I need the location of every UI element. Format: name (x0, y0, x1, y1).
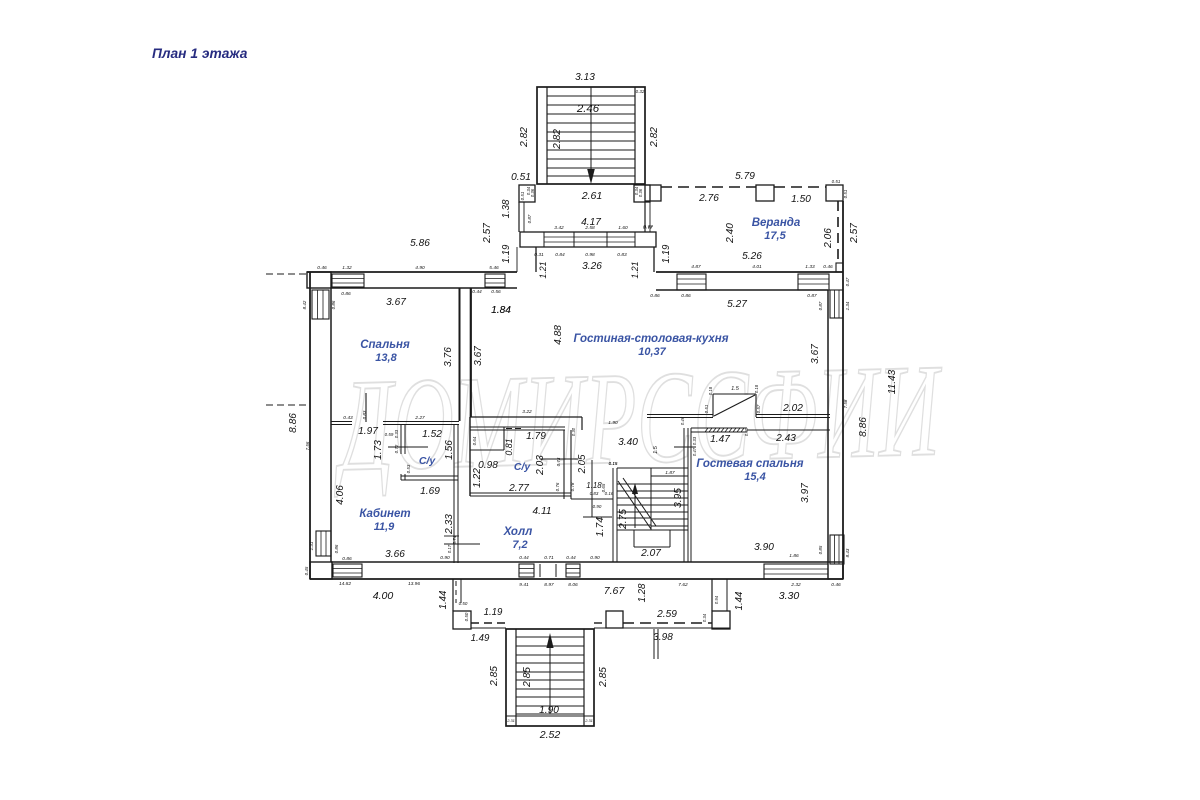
svg-text:0.17: 0.17 (447, 544, 452, 553)
svg-text:3.67: 3.67 (473, 346, 484, 366)
svg-text:3.26: 3.26 (582, 261, 602, 272)
svg-text:0.86: 0.86 (334, 544, 339, 553)
svg-text:1.97: 1.97 (358, 426, 378, 437)
svg-text:0.44: 0.44 (519, 555, 529, 561)
svg-text:2.27: 2.27 (414, 415, 425, 421)
svg-text:5.46: 5.46 (489, 265, 499, 271)
svg-text:0.77: 0.77 (643, 224, 653, 230)
svg-text:2.76: 2.76 (698, 193, 719, 204)
svg-text:3.97: 3.97 (800, 483, 811, 503)
svg-text:0.57: 0.57 (756, 404, 761, 413)
svg-text:7.67: 7.67 (604, 585, 626, 597)
svg-text:2.40: 2.40 (725, 223, 736, 244)
svg-text:1.19: 1.19 (484, 607, 503, 618)
svg-text:0.65: 0.65 (601, 483, 606, 492)
svg-text:1.18: 1.18 (586, 481, 602, 490)
svg-text:4.88: 4.88 (553, 325, 564, 345)
svg-text:1.44: 1.44 (734, 591, 745, 610)
svg-text:0.81: 0.81 (504, 438, 514, 455)
svg-text:1.34: 1.34 (845, 301, 850, 310)
svg-text:3.67: 3.67 (810, 344, 821, 364)
svg-text:2.31: 2.31 (506, 718, 515, 723)
svg-text:0.56: 0.56 (491, 289, 501, 295)
svg-text:1.19: 1.19 (661, 244, 672, 263)
svg-text:0.32: 0.32 (636, 89, 645, 94)
svg-text:8.86: 8.86 (288, 413, 299, 433)
svg-text:4.87: 4.87 (691, 264, 701, 270)
svg-text:0.46: 0.46 (680, 416, 685, 425)
svg-text:Веранда: Веранда (752, 217, 801, 229)
svg-text:2.82: 2.82 (649, 127, 660, 148)
svg-text:2.57: 2.57 (849, 223, 860, 244)
svg-text:3.76: 3.76 (443, 347, 454, 367)
svg-text:1.5: 1.5 (731, 386, 740, 392)
svg-text:1.28: 1.28 (637, 583, 648, 602)
svg-text:0.34: 0.34 (702, 613, 707, 622)
svg-text:7.58: 7.58 (843, 399, 848, 408)
svg-text:2.77: 2.77 (508, 483, 529, 494)
svg-text:5.27: 5.27 (727, 299, 747, 310)
svg-text:С/у: С/у (419, 455, 437, 467)
svg-text:15,4: 15,4 (744, 471, 765, 483)
svg-text:1.19: 1.19 (501, 244, 512, 263)
svg-text:1.50: 1.50 (791, 194, 811, 205)
svg-text:0.94: 0.94 (714, 595, 719, 604)
svg-text:3.90: 3.90 (754, 542, 774, 553)
svg-text:1.49: 1.49 (471, 633, 490, 644)
svg-text:1.44: 1.44 (438, 590, 449, 609)
svg-text:1.90: 1.90 (608, 420, 618, 426)
svg-text:1.32: 1.32 (342, 265, 352, 271)
svg-text:0.36: 0.36 (530, 188, 535, 197)
svg-text:3.66: 3.66 (385, 549, 405, 560)
svg-text:0.50: 0.50 (464, 612, 469, 621)
svg-text:1.79: 1.79 (526, 431, 546, 442)
svg-text:2.85: 2.85 (489, 666, 500, 687)
svg-text:3.22: 3.22 (522, 409, 532, 415)
svg-text:0.44: 0.44 (472, 289, 482, 295)
svg-text:1.60: 1.60 (618, 225, 628, 231)
svg-text:0.50: 0.50 (459, 601, 468, 606)
svg-text:1.5: 1.5 (653, 445, 659, 454)
svg-text:0.36: 0.36 (638, 188, 643, 197)
svg-text:2.57: 2.57 (482, 223, 493, 244)
svg-text:0.51: 0.51 (832, 179, 841, 184)
svg-text:С/у: С/у (514, 461, 532, 473)
svg-text:0.87: 0.87 (527, 214, 532, 223)
svg-text:0.71: 0.71 (544, 555, 554, 561)
svg-text:4.00: 4.00 (373, 590, 394, 602)
svg-text:8.42: 8.42 (302, 300, 307, 309)
svg-text:1.56: 1.56 (444, 440, 455, 460)
svg-text:0.87: 0.87 (807, 293, 817, 299)
svg-text:0.45: 0.45 (304, 566, 309, 575)
svg-text:0.90: 0.90 (590, 555, 600, 561)
svg-text:11.43: 11.43 (887, 369, 898, 394)
svg-text:0.47: 0.47 (692, 447, 697, 456)
svg-text:0.51: 0.51 (511, 172, 531, 183)
svg-text:1.90: 1.90 (539, 705, 559, 716)
svg-text:2.58: 2.58 (584, 225, 595, 231)
svg-text:1.87: 1.87 (665, 470, 675, 476)
svg-text:0.46: 0.46 (831, 582, 841, 588)
svg-text:0.18: 0.18 (708, 386, 713, 395)
svg-text:Гостиная-столовая-кухня: Гостиная-столовая-кухня (573, 333, 728, 345)
svg-text:2.85: 2.85 (522, 667, 533, 688)
svg-text:0.47: 0.47 (845, 277, 850, 286)
svg-text:0.84: 0.84 (555, 252, 565, 258)
svg-text:3.30: 3.30 (779, 590, 800, 602)
svg-text:0.78: 0.78 (570, 482, 575, 491)
svg-text:0.33: 0.33 (692, 436, 697, 445)
svg-text:3.95: 3.95 (673, 488, 684, 508)
svg-text:1.74: 1.74 (595, 517, 606, 537)
svg-text:5.86: 5.86 (410, 238, 430, 249)
svg-text:0.51: 0.51 (520, 191, 525, 200)
svg-text:2.85: 2.85 (598, 667, 609, 688)
svg-text:1.86: 1.86 (789, 553, 799, 559)
svg-text:0.18: 0.18 (754, 384, 759, 393)
svg-text:4.01: 4.01 (752, 264, 762, 270)
svg-text:1.21: 1.21 (630, 261, 640, 278)
svg-text:11,9: 11,9 (374, 521, 395, 533)
svg-text:0.16: 0.16 (605, 491, 614, 496)
svg-text:3.13: 3.13 (575, 72, 595, 83)
svg-text:3.42: 3.42 (554, 225, 564, 231)
svg-text:9.41: 9.41 (519, 582, 529, 588)
svg-text:4.90: 4.90 (415, 265, 425, 271)
svg-text:Кабинет: Кабинет (359, 508, 410, 520)
svg-text:0.76: 0.76 (555, 482, 560, 491)
svg-text:1.84: 1.84 (491, 305, 511, 316)
svg-text:1.47: 1.47 (710, 434, 730, 445)
svg-text:0.86: 0.86 (650, 293, 660, 299)
svg-text:7,2: 7,2 (512, 539, 527, 551)
svg-text:0.46: 0.46 (823, 264, 833, 270)
svg-text:2.03: 2.03 (535, 455, 546, 476)
svg-text:2.06: 2.06 (823, 228, 834, 249)
svg-text:Гостевая спальня: Гостевая спальня (696, 458, 803, 470)
svg-text:2.75: 2.75 (618, 509, 629, 530)
svg-text:0.43: 0.43 (343, 415, 353, 421)
svg-text:2.05: 2.05 (577, 454, 588, 474)
svg-text:0.15: 0.15 (609, 461, 618, 466)
svg-text:0.83: 0.83 (617, 252, 627, 258)
svg-text:0.30: 0.30 (571, 427, 576, 436)
svg-text:8.43: 8.43 (845, 548, 850, 557)
svg-text:2.82: 2.82 (519, 127, 530, 148)
svg-text:2.32: 2.32 (790, 582, 801, 588)
svg-text:0.98: 0.98 (585, 252, 595, 258)
svg-text:13,8: 13,8 (375, 352, 397, 364)
svg-text:8.06: 8.06 (568, 582, 578, 588)
svg-text:2.61: 2.61 (581, 190, 603, 202)
svg-text:2.33: 2.33 (444, 514, 455, 535)
svg-text:2.59: 2.59 (656, 609, 677, 620)
svg-text:2.07: 2.07 (640, 548, 661, 559)
svg-text:2.46: 2.46 (576, 103, 600, 115)
svg-text:0.86: 0.86 (681, 293, 691, 299)
svg-text:0.74: 0.74 (452, 535, 457, 544)
svg-text:0.44: 0.44 (566, 555, 576, 561)
svg-text:0.51: 0.51 (843, 189, 848, 198)
svg-text:1.33: 1.33 (805, 264, 815, 270)
svg-text:0.90: 0.90 (440, 555, 450, 561)
svg-text:8.86: 8.86 (858, 417, 869, 437)
svg-text:0.46: 0.46 (317, 265, 327, 271)
svg-text:1.31: 1.31 (309, 541, 314, 550)
svg-text:0.87: 0.87 (818, 301, 823, 310)
svg-text:0.83: 0.83 (590, 491, 599, 496)
svg-text:3.40: 3.40 (618, 437, 638, 448)
svg-text:1.69: 1.69 (420, 486, 440, 497)
svg-text:0.73: 0.73 (556, 457, 561, 466)
svg-text:2.43: 2.43 (775, 433, 796, 444)
svg-text:17,5: 17,5 (764, 230, 786, 242)
svg-text:0.72: 0.72 (394, 444, 399, 453)
svg-text:0.33: 0.33 (394, 429, 399, 438)
svg-text:4.11: 4.11 (533, 506, 552, 517)
svg-text:1.52: 1.52 (422, 429, 442, 440)
svg-text:0.86: 0.86 (342, 556, 352, 562)
svg-text:План 1 этажа: План 1 этажа (152, 46, 248, 61)
svg-text:0.59: 0.59 (385, 432, 394, 437)
svg-text:7.62: 7.62 (678, 582, 688, 588)
svg-text:1.73: 1.73 (373, 440, 384, 460)
svg-text:0.31: 0.31 (534, 252, 544, 258)
svg-text:0.85: 0.85 (818, 545, 823, 554)
svg-text:10,37: 10,37 (638, 346, 666, 358)
svg-text:0.53: 0.53 (406, 464, 411, 473)
svg-text:5.79: 5.79 (735, 171, 755, 182)
svg-text:0.90: 0.90 (593, 504, 602, 509)
svg-text:0.86: 0.86 (341, 291, 351, 297)
svg-text:2.02: 2.02 (782, 403, 803, 414)
svg-text:14.82: 14.82 (339, 581, 351, 587)
svg-text:13.96: 13.96 (408, 581, 420, 587)
svg-text:2.82: 2.82 (552, 129, 563, 150)
svg-text:1.38: 1.38 (501, 199, 512, 218)
svg-text:0.90: 0.90 (744, 427, 749, 436)
svg-text:Холл: Холл (503, 526, 533, 538)
svg-text:3.98: 3.98 (653, 632, 673, 643)
svg-text:1.21: 1.21 (538, 261, 548, 278)
svg-text:2.31: 2.31 (584, 718, 593, 723)
svg-text:8.97: 8.97 (544, 582, 554, 588)
svg-text:0.83: 0.83 (362, 410, 367, 419)
svg-text:0.51: 0.51 (704, 404, 709, 413)
svg-text:Спальня: Спальня (360, 339, 410, 351)
svg-text:7.56: 7.56 (305, 441, 310, 450)
svg-text:3.67: 3.67 (386, 297, 406, 308)
svg-text:4.06: 4.06 (335, 485, 346, 505)
svg-text:5.26: 5.26 (742, 251, 762, 262)
svg-text:1.22: 1.22 (472, 468, 483, 488)
svg-text:2.52: 2.52 (539, 729, 561, 741)
svg-text:0.64: 0.64 (472, 436, 477, 445)
